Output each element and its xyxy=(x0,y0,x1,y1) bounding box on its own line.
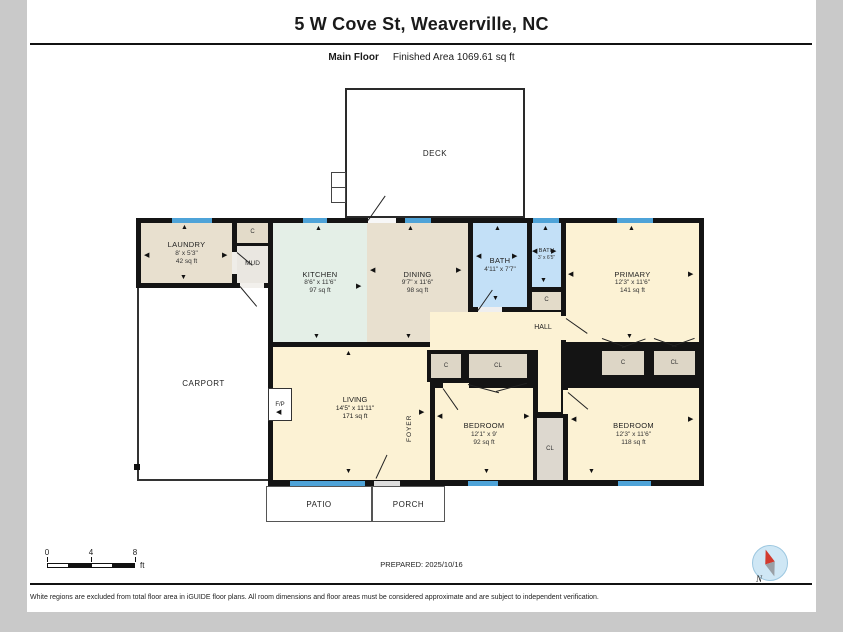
door-opening xyxy=(368,218,396,223)
dimension-arrow-icon: ▶ xyxy=(419,409,424,416)
dimension-arrow-icon: ▶ xyxy=(551,248,556,255)
scale-bar-segment xyxy=(69,563,91,568)
dimension-arrow-icon: ▼ xyxy=(588,468,595,475)
door-opening xyxy=(240,283,264,288)
dimension-arrow-icon: ◀ xyxy=(568,271,573,278)
dimension-arrow-icon: ▼ xyxy=(626,333,633,340)
dimension-arrow-icon: ▼ xyxy=(405,333,412,340)
prepared-date: PREPARED: 2025/10/16 xyxy=(330,560,513,569)
dimension-arrow-icon: ◀ xyxy=(571,416,576,423)
scale-bar-segment xyxy=(47,563,69,568)
dimension-arrow-icon: ◀ xyxy=(437,413,442,420)
door-opening xyxy=(374,481,400,486)
dimension-arrow-icon: ◀ xyxy=(532,248,537,255)
window-icon xyxy=(172,218,212,223)
floor-name: Main Floor xyxy=(328,52,379,63)
closet-label: C xyxy=(544,297,548,305)
window-icon xyxy=(290,481,365,486)
room-area: 42 sq ft xyxy=(176,258,197,266)
closet-label: CL xyxy=(546,446,554,452)
dimension-arrow-icon: ▶ xyxy=(524,413,529,420)
deck-stairs xyxy=(331,172,346,188)
deck-stairs xyxy=(331,187,346,203)
scale-bar-segment xyxy=(91,563,113,568)
room-hall xyxy=(430,312,561,350)
dimension-arrow-icon: ▶ xyxy=(222,252,227,259)
scale-tick-0: 0 xyxy=(41,548,53,557)
dimension-arrow-icon: ▶ xyxy=(688,416,693,423)
finished-area: Finished Area 1069.61 sq ft xyxy=(393,52,515,63)
room-dims: 12'1" x 9' xyxy=(471,431,497,439)
room-bedroom2: BEDROOM 12'3" x 11'6" 118 sq ft xyxy=(568,388,699,480)
room-name: PRIMARY xyxy=(614,270,650,279)
dimension-arrow-icon: ▲ xyxy=(345,350,352,357)
closet-label: C xyxy=(444,363,448,369)
room-bedroom1: BEDROOM 12'1" x 9' 92 sq ft xyxy=(435,388,533,480)
dimension-arrow-icon: ▼ xyxy=(492,295,499,302)
room-dims: 12'3" x 11'6" xyxy=(616,431,651,439)
scale-tick-8: 8 xyxy=(129,548,141,557)
closet-bath: C xyxy=(532,292,561,310)
window-icon xyxy=(533,218,559,223)
scale-bar-segment xyxy=(113,563,135,568)
page-title: 5 W Cove St, Weaverville, NC xyxy=(27,14,816,35)
room-dims: 9'7" x 11'6" xyxy=(402,279,434,287)
dimension-arrow-icon: ▲ xyxy=(315,225,322,232)
closet-label: C xyxy=(621,360,625,366)
room-dims: 14'5" x 11'11" xyxy=(336,405,374,413)
dimension-arrow-icon: ◀ xyxy=(370,267,375,274)
closet-bedroom2-cl: CL xyxy=(650,347,699,379)
closet-label: CL xyxy=(671,360,679,366)
dimension-arrow-icon: ◀ xyxy=(144,252,149,259)
fireplace-label: F/P xyxy=(275,402,284,408)
room-area: 171 sq ft xyxy=(343,413,368,421)
room-dims: 3' x 6'5" xyxy=(538,255,555,261)
dimension-arrow-icon: ▼ xyxy=(180,274,187,281)
page-margin-left xyxy=(0,0,27,632)
room-area: 118 sq ft xyxy=(621,439,645,447)
dimension-arrow-icon: ▼ xyxy=(313,333,320,340)
patio-area: PATIO xyxy=(266,486,372,522)
door-opening xyxy=(561,316,566,340)
dimension-arrow-icon: ▲ xyxy=(542,225,549,232)
closet-bedroom2-c: C xyxy=(598,347,648,379)
room-dims: 4'11" x 7'7" xyxy=(484,266,516,274)
carport-label: CARPORT xyxy=(182,379,224,388)
dimension-arrow-icon: ◀ xyxy=(476,253,481,260)
carport-area: CARPORT xyxy=(137,288,268,481)
room-dims: 12'3" x 11'6" xyxy=(615,279,650,287)
room-name: BEDROOM xyxy=(613,421,654,430)
scale-tickmark xyxy=(135,557,136,562)
dimension-arrow-icon: ▶ xyxy=(688,271,693,278)
room-area: 97 sq ft xyxy=(309,287,330,295)
window-icon xyxy=(468,481,498,486)
dimension-arrow-icon: ▲ xyxy=(407,225,414,232)
closet-above-mud: C xyxy=(237,223,268,243)
porch-area: PORCH xyxy=(372,486,445,522)
closet-hall-cl: CL xyxy=(465,350,531,382)
porch-label: PORCH xyxy=(393,500,424,509)
scale-unit-label: ft xyxy=(140,561,144,570)
window-icon xyxy=(617,218,653,223)
room-area: 98 sq ft xyxy=(407,287,428,295)
dimension-arrow-icon: ▶ xyxy=(512,253,517,260)
room-kitchen: KITCHEN 8'6" x 11'6" 97 sq ft xyxy=(273,223,367,342)
dimension-arrow-icon: ▼ xyxy=(483,468,490,475)
door-opening xyxy=(478,307,502,312)
page-margin-right xyxy=(816,0,843,632)
room-name: BEDROOM xyxy=(464,421,505,430)
room-name: BATH xyxy=(490,256,511,265)
page-margin-bottom xyxy=(27,612,816,632)
floor-plan-canvas: 5 W Cove St, Weaverville, NC Main FloorF… xyxy=(0,0,843,632)
dimension-arrow-icon: ▶ xyxy=(456,267,461,274)
carport-post xyxy=(134,464,140,470)
fireplace: F/P xyxy=(268,388,292,421)
deck-area: DECK xyxy=(345,88,525,218)
room-bath: BATH 4'11" x 7'7" xyxy=(473,223,527,307)
disclaimer-text: White regions are excluded from total fl… xyxy=(30,594,810,601)
living-label-block: LIVING 14'5" x 11'11" 171 sq ft xyxy=(300,395,410,422)
room-name: LIVING xyxy=(343,395,368,405)
header-divider xyxy=(30,43,812,45)
window-icon xyxy=(618,481,651,486)
dimension-arrow-icon: ▼ xyxy=(540,277,547,284)
room-name: DINING xyxy=(403,270,431,279)
window-icon xyxy=(303,218,327,223)
scale-tickmark xyxy=(47,557,48,562)
room-name: KITCHEN xyxy=(302,270,337,279)
footer-divider xyxy=(30,583,812,585)
dimension-arrow-icon: ▲ xyxy=(181,224,188,231)
room-name: LAUNDRY xyxy=(168,240,206,249)
dimension-arrow-icon: ▼ xyxy=(345,468,352,475)
closet-hall-c: C xyxy=(427,350,465,382)
door-opening xyxy=(563,390,568,414)
patio-label: PATIO xyxy=(306,500,331,509)
room-dims: 8'6" x 11'6" xyxy=(304,279,336,287)
room-primary: PRIMARY 12'3" x 11'6" 141 sq ft xyxy=(566,223,699,342)
dimension-arrow-icon: ◀ xyxy=(276,409,281,416)
deck-label: DECK xyxy=(423,149,447,158)
hall-label: HALL xyxy=(520,324,566,331)
room-area: 92 sq ft xyxy=(473,439,494,447)
door-opening xyxy=(443,383,469,388)
door-opening xyxy=(232,252,237,274)
dimension-arrow-icon: ▲ xyxy=(628,225,635,232)
closet-label: C xyxy=(250,229,254,237)
scale-tick-4: 4 xyxy=(85,548,97,557)
closet-between-bedrooms: CL xyxy=(537,418,563,480)
dimension-arrow-icon: ▲ xyxy=(494,225,501,232)
room-dims: 8' x 5'3" xyxy=(175,250,198,258)
room-hall-extension xyxy=(538,350,561,412)
closet-label: CL xyxy=(494,363,502,369)
dimension-arrow-icon: ▶ xyxy=(356,283,361,290)
window-icon xyxy=(405,218,431,223)
floor-subtitle: Main FloorFinished Area 1069.61 sq ft xyxy=(27,52,816,63)
foyer-label: FOYER xyxy=(406,400,420,456)
room-area: 141 sq ft xyxy=(620,287,645,295)
scale-tickmark xyxy=(91,557,92,562)
